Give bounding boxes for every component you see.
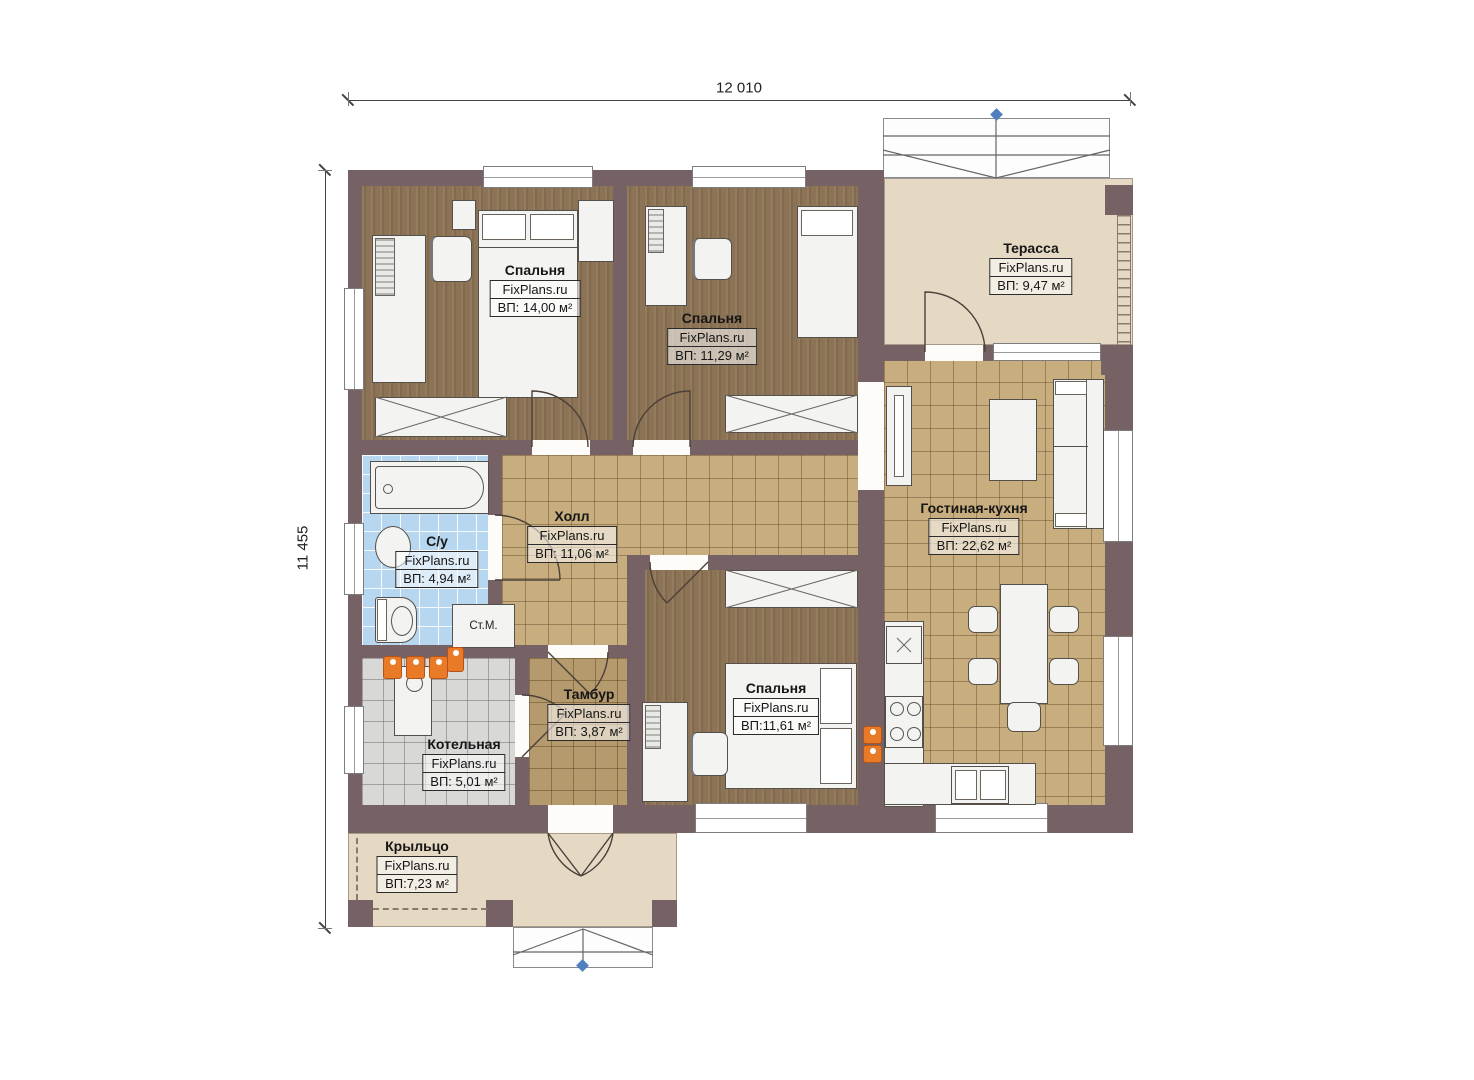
door-opening-boiler bbox=[515, 695, 529, 757]
wardrobe-bedroom1 bbox=[375, 397, 507, 437]
door-opening-bathroom bbox=[488, 515, 502, 580]
brand-watermark: FixPlans.ru bbox=[395, 551, 478, 570]
dimension-line-top bbox=[348, 100, 1130, 101]
coffee-table bbox=[989, 399, 1037, 481]
radiator bbox=[863, 726, 882, 744]
radiator bbox=[863, 745, 882, 763]
room-area: ВП: 5,01 м² bbox=[422, 773, 505, 791]
pillow bbox=[530, 214, 574, 240]
door-opening-entry bbox=[548, 805, 613, 833]
chair-bedroom3 bbox=[690, 732, 728, 776]
sofa-cushion-line bbox=[1054, 446, 1088, 447]
desk-bedroom1 bbox=[372, 235, 426, 383]
sink-basin bbox=[980, 770, 1006, 800]
porch-railing-bottom bbox=[373, 908, 487, 910]
brand-watermark: FixPlans.ru bbox=[667, 328, 757, 347]
room-area: ВП: 4,94 м² bbox=[395, 570, 478, 588]
room-area: ВП: 9,47 м² bbox=[989, 277, 1072, 295]
room-label-bedroom-1: Спальня FixPlans.ru ВП: 14,00 м² bbox=[490, 262, 581, 317]
pillow bbox=[482, 214, 526, 240]
nightstand bbox=[452, 200, 476, 230]
sofa-armrest bbox=[1055, 381, 1087, 395]
brand-watermark: FixPlans.ru bbox=[376, 856, 457, 875]
room-name: Спальня bbox=[667, 310, 757, 326]
dining-chair bbox=[1049, 606, 1079, 633]
sink-drainer bbox=[955, 770, 977, 800]
wall-corner-terrace bbox=[1101, 345, 1133, 375]
brand-watermark: FixPlans.ru bbox=[989, 258, 1072, 277]
stove bbox=[885, 696, 923, 748]
porch-column-right bbox=[652, 900, 677, 927]
terrace-railing-right bbox=[1117, 215, 1131, 345]
window-living-right-1 bbox=[1103, 430, 1133, 542]
dimension-serif bbox=[1130, 92, 1131, 106]
burner bbox=[907, 727, 921, 741]
bathtub-drain bbox=[383, 484, 393, 494]
toilet bbox=[375, 597, 417, 643]
room-label-hall: Холл FixPlans.ru ВП: 11,06 м² bbox=[527, 508, 617, 563]
window-living-terrace bbox=[993, 343, 1101, 361]
wall-terrace-left bbox=[858, 170, 884, 359]
burner bbox=[907, 702, 921, 716]
radiator bbox=[406, 656, 425, 679]
door-opening-terrace bbox=[925, 345, 983, 361]
window-bedroom2-top bbox=[692, 166, 806, 188]
room-label-porch: Крыльцо FixPlans.ru ВП:7,23 м² bbox=[376, 838, 457, 893]
window-boiler-left bbox=[344, 706, 364, 774]
burner bbox=[890, 727, 904, 741]
sofa bbox=[1053, 379, 1104, 529]
door-opening-bedroom3 bbox=[650, 555, 708, 570]
room-name: Спальня bbox=[733, 680, 819, 696]
door-opening-bedroom2 bbox=[633, 440, 690, 455]
nightstand bbox=[578, 200, 614, 262]
room-area: ВП: 22,62 м² bbox=[929, 537, 1020, 555]
room-name: Котельная bbox=[422, 736, 505, 752]
desk-drawers bbox=[375, 238, 395, 296]
washing-machine-label: Ст.М. bbox=[452, 604, 515, 648]
dimension-width-label: 12 010 bbox=[712, 80, 766, 97]
room-name: Крыльцо bbox=[376, 838, 457, 854]
blanket-line bbox=[479, 247, 577, 248]
toilet-bowl bbox=[391, 606, 413, 636]
radiator bbox=[447, 647, 464, 672]
dining-chair bbox=[1007, 702, 1041, 732]
dining-chair bbox=[968, 606, 998, 633]
room-label-tambour: Тамбур FixPlans.ru ВП: 3,87 м² bbox=[547, 686, 630, 741]
terrace-edge-line bbox=[884, 178, 1133, 179]
room-area: ВП: 11,29 м² bbox=[667, 347, 757, 365]
desk-bedroom3 bbox=[642, 702, 688, 802]
window-bathroom-left bbox=[344, 523, 364, 595]
dimension-serif bbox=[318, 170, 332, 171]
room-name: Тамбур bbox=[547, 686, 630, 702]
brand-watermark: FixPlans.ru bbox=[422, 754, 505, 773]
dining-table bbox=[1000, 584, 1048, 704]
sofa-back-line bbox=[1086, 380, 1087, 528]
room-name: Спальня bbox=[490, 262, 581, 278]
dimension-serif bbox=[348, 92, 349, 106]
dimension-line-left bbox=[325, 170, 326, 928]
desk-drawers bbox=[645, 705, 661, 749]
room-area: ВП: 3,87 м² bbox=[547, 723, 630, 741]
room-label-terrace: Терасса FixPlans.ru ВП: 9,47 м² bbox=[989, 240, 1072, 295]
desk-bedroom2 bbox=[645, 206, 687, 306]
room-area: ВП: 11,06 м² bbox=[527, 545, 617, 563]
room-label-bathroom: С/у FixPlans.ru ВП: 4,94 м² bbox=[395, 533, 478, 588]
wall-bedroom-divider bbox=[613, 186, 627, 440]
terrace-stairs bbox=[883, 118, 1110, 178]
radiator bbox=[429, 656, 448, 679]
desk-drawers bbox=[648, 209, 664, 253]
brand-watermark: FixPlans.ru bbox=[929, 518, 1020, 537]
room-name: Терасса bbox=[989, 240, 1072, 256]
pillow bbox=[820, 728, 852, 784]
window-kitchen-bottom bbox=[935, 803, 1048, 833]
toilet-tank bbox=[377, 599, 387, 641]
room-area: ВП:7,23 м² bbox=[376, 875, 457, 893]
room-label-bedroom-2: Спальня FixPlans.ru ВП: 11,29 м² bbox=[667, 310, 757, 365]
fridge bbox=[886, 626, 922, 664]
floor-hall-lower bbox=[502, 555, 627, 645]
wardrobe-bedroom3 bbox=[725, 570, 858, 608]
porch-railing-left bbox=[356, 838, 358, 900]
floor-plan-canvas: Ст.М. bbox=[0, 0, 1474, 1080]
door-opening-bedroom1 bbox=[532, 440, 590, 455]
room-name: С/у bbox=[395, 533, 478, 549]
bed-single-bedroom2 bbox=[797, 206, 858, 338]
sliding-door-panel bbox=[886, 386, 912, 486]
sofa-armrest bbox=[1055, 513, 1087, 527]
wardrobe-bedroom2 bbox=[725, 395, 858, 433]
dimension-serif bbox=[318, 928, 332, 929]
porch-column-left bbox=[348, 900, 373, 927]
porch-column-middle bbox=[486, 900, 513, 927]
room-label-living-kitchen: Гостиная-кухня FixPlans.ru ВП: 22,62 м² bbox=[920, 500, 1027, 555]
window-living-right-2 bbox=[1103, 636, 1133, 746]
dining-chair bbox=[1049, 658, 1079, 685]
opening-hall-living bbox=[858, 382, 884, 490]
door-opening-tambour bbox=[548, 645, 608, 658]
pillow bbox=[801, 210, 853, 236]
wall-post-terrace bbox=[1105, 185, 1133, 215]
brand-watermark: FixPlans.ru bbox=[547, 704, 630, 723]
room-name: Гостиная-кухня bbox=[920, 500, 1027, 516]
burner bbox=[890, 702, 904, 716]
dining-chair bbox=[968, 658, 998, 685]
brand-watermark: FixPlans.ru bbox=[733, 698, 819, 717]
pillow bbox=[820, 668, 852, 724]
wall-bedrooms-hall bbox=[362, 440, 884, 455]
room-name: Холл bbox=[527, 508, 617, 524]
brand-watermark: FixPlans.ru bbox=[527, 526, 617, 545]
chair-bedroom2 bbox=[692, 238, 732, 280]
radiator bbox=[383, 656, 402, 679]
window-bedroom1-top bbox=[483, 166, 593, 188]
chair-bedroom1 bbox=[430, 236, 472, 282]
window-bedroom1-left bbox=[344, 288, 364, 390]
window-bedroom3-bottom bbox=[695, 803, 807, 833]
kitchen-sink bbox=[951, 766, 1009, 804]
room-area: ВП:11,61 м² bbox=[733, 717, 819, 735]
room-label-bedroom-3: Спальня FixPlans.ru ВП:11,61 м² bbox=[733, 680, 819, 735]
bathtub bbox=[370, 461, 489, 514]
room-label-boiler-room: Котельная FixPlans.ru ВП: 5,01 м² bbox=[422, 736, 505, 791]
sliding-door-leaf bbox=[894, 395, 904, 477]
dimension-height-label: 11 455 bbox=[295, 522, 312, 575]
room-area: ВП: 14,00 м² bbox=[490, 299, 581, 317]
brand-watermark: FixPlans.ru bbox=[490, 280, 581, 299]
